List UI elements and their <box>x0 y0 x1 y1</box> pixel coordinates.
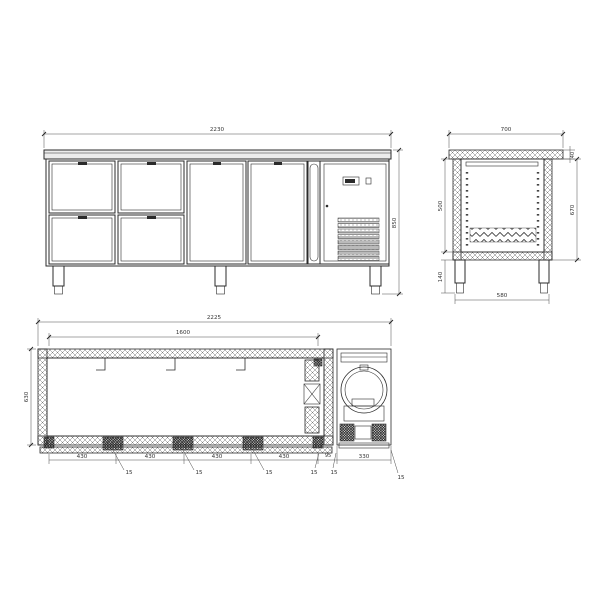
drawer-column-2 <box>118 161 184 264</box>
leg <box>215 266 226 286</box>
dim-side-base-depth: 580 <box>497 293 508 299</box>
counter-top <box>44 150 391 159</box>
plan-depth-dimension: 630 <box>24 347 36 447</box>
wire-shelf[interactable] <box>470 228 536 242</box>
hinge-pin <box>96 358 105 370</box>
dim-front-overall-width: 2230 <box>210 127 225 133</box>
counter-top-section <box>449 150 563 159</box>
dim-plan-bay-2: 430 <box>145 454 156 460</box>
dim-panel-thickness: 15 <box>310 470 318 476</box>
leg <box>539 260 549 283</box>
drawer-front[interactable] <box>49 215 115 264</box>
door-section-insulation <box>544 159 552 260</box>
dim-plan-bay-3: 430 <box>212 454 223 460</box>
front-width-dimension: 2230 <box>42 127 393 148</box>
refrigerated-counter-technical-drawing: 2230 <box>0 0 600 600</box>
drawer-handle[interactable] <box>78 162 87 165</box>
dim-side-overall-depth: 700 <box>501 127 512 133</box>
leg-foot <box>372 286 380 294</box>
dim-plan-inner-depth: 630 <box>24 391 30 402</box>
plan-inner-width-dimension: 1600 <box>47 330 320 346</box>
right-wall-insulation <box>324 349 333 445</box>
evaporator-coil <box>305 360 319 381</box>
leg <box>455 260 465 283</box>
side-view: 700 40 500 <box>438 127 581 304</box>
door-hinge <box>213 162 221 165</box>
leg <box>53 266 64 286</box>
front-wall-insulation <box>38 349 333 358</box>
door-2[interactable] <box>248 161 307 264</box>
screw-icon <box>326 205 329 208</box>
side-body-height-dimension: 670 <box>552 157 581 262</box>
bottom-wall-insulation <box>453 252 552 260</box>
leg-foot <box>457 283 464 293</box>
dim-plan-gap-width: 95 <box>325 453 331 459</box>
evaporator-coil <box>305 407 319 433</box>
drawer-front[interactable] <box>118 161 184 213</box>
machine-compartment-plan <box>337 349 391 448</box>
dim-panel-thickness: 15 <box>195 470 203 476</box>
dim-front-overall-height: 850 <box>392 217 398 228</box>
hinge-pin <box>236 358 245 370</box>
drawer-handle[interactable] <box>78 216 87 219</box>
machine-base <box>339 443 389 448</box>
side-top-thickness-dimension: 40 <box>563 146 576 163</box>
dim-plan-overall-width: 2225 <box>207 315 222 321</box>
drawer-front[interactable] <box>118 215 184 264</box>
dim-plan-bay-1: 430 <box>77 454 88 460</box>
front-legs <box>53 266 381 294</box>
dim-side-inner-height: 500 <box>438 200 444 211</box>
plan-width-dimension: 2225 <box>36 315 393 346</box>
door-1[interactable] <box>187 161 246 264</box>
drawer-handle[interactable] <box>147 216 156 219</box>
leg-foot <box>541 283 548 293</box>
drawer-handle[interactable] <box>147 162 156 165</box>
interior-cavity <box>47 358 324 436</box>
side-base-depth-dimension: 580 <box>455 293 549 304</box>
drawer-front[interactable] <box>49 161 115 213</box>
dim-side-leg-height: 140 <box>438 271 444 282</box>
leg-foot <box>55 286 63 294</box>
side-depth-dimension: 700 <box>447 127 565 148</box>
dim-side-body-height: 670 <box>570 204 576 215</box>
side-leg-height-dimension: 140 <box>438 260 455 293</box>
dim-plan-bay-4: 430 <box>279 454 290 460</box>
condenser-block <box>340 424 354 441</box>
leg-foot <box>217 286 225 294</box>
mullion-strip <box>308 161 320 264</box>
plan-view: 2225 1600 <box>24 315 405 481</box>
leg <box>370 266 381 286</box>
dim-panel-thickness: 15 <box>330 470 338 476</box>
mullion-block <box>44 437 54 448</box>
mullion-block <box>313 437 323 448</box>
compressor-mount <box>352 399 374 406</box>
technical-drawing-page: 2230 <box>0 0 600 600</box>
left-wall-insulation <box>38 349 47 445</box>
dim-panel-thickness: 15 <box>397 475 405 481</box>
back-wall-insulation <box>453 159 461 260</box>
dim-plan-machine-width: 330 <box>359 454 370 460</box>
dim-panel-thickness: 15 <box>265 470 273 476</box>
base-rail <box>40 447 332 453</box>
plan-insulated-body <box>38 349 333 445</box>
drawer-column-1 <box>49 161 115 264</box>
dim-side-top-thickness: 40 <box>570 152 576 158</box>
condenser-top-bar <box>341 353 387 362</box>
evaporator-zone <box>304 359 322 433</box>
condenser-block <box>372 424 386 441</box>
machine-compartment <box>320 161 389 264</box>
hinge-pin <box>166 358 175 370</box>
dim-plan-inner-width: 1600 <box>176 330 191 336</box>
interior-top-panel <box>466 162 538 166</box>
door-hinge <box>274 162 282 165</box>
dim-panel-thickness: 15 <box>125 470 133 476</box>
front-view: 2230 <box>42 127 403 296</box>
